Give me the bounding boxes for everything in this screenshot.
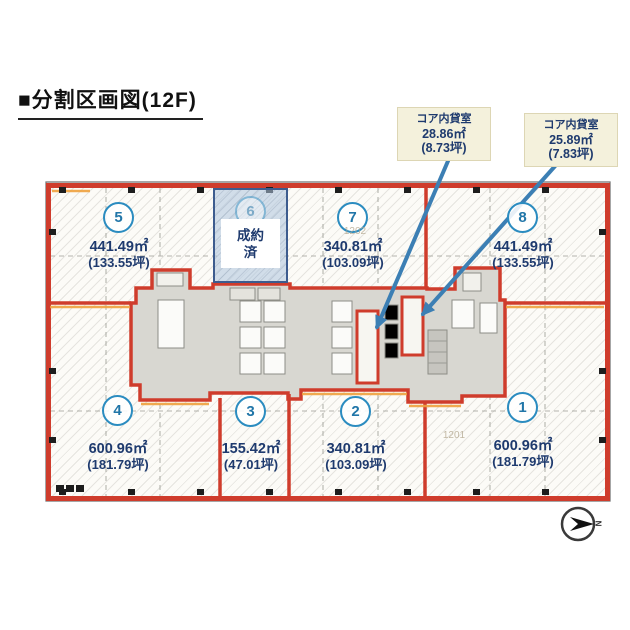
elevator-shaft xyxy=(332,353,352,374)
core-outline xyxy=(131,268,505,402)
elevator-shaft xyxy=(240,327,261,348)
section-7-area-tsubo: (103.09坪) xyxy=(273,255,433,270)
core-rental-room-1 xyxy=(357,311,378,383)
core-room xyxy=(480,303,497,333)
elevator-shaft xyxy=(264,301,285,322)
section-2-area-tsubo: (103.09坪) xyxy=(276,457,436,472)
elevator-shaft xyxy=(240,301,261,322)
section-6-number: 6 xyxy=(246,203,254,220)
elevator-shaft xyxy=(240,353,261,374)
section-2-number: 2 xyxy=(351,403,359,420)
north-compass xyxy=(562,508,594,540)
section-8-circle: 8 xyxy=(507,202,538,233)
section-3-circle: 3 xyxy=(235,396,266,427)
section-1-area: 600.96㎡ (181.79坪) xyxy=(443,439,603,469)
section-1-circle: 1 xyxy=(507,392,538,423)
dim-label-1201: 1201 xyxy=(432,430,476,441)
callout-core-room-1: コア内貸室 28.86㎡ (8.73坪) xyxy=(397,107,491,161)
callout-1-label: コア内貸室 xyxy=(417,112,472,127)
core-room xyxy=(452,300,474,328)
section-4-circle: 4 xyxy=(102,395,133,426)
callout-2-area-m2: 25.89㎡ xyxy=(549,133,593,148)
section-8-area-m2: 441.49㎡ xyxy=(443,240,603,255)
elevator-shaft xyxy=(332,327,352,348)
elevator-shaft xyxy=(264,353,285,374)
plan-drawing xyxy=(0,0,630,630)
callout-1-area-m2: 28.86㎡ xyxy=(422,127,466,142)
section-1-area-tsubo: (181.79坪) xyxy=(443,454,603,469)
callout-2-area-tsubo: (7.83坪) xyxy=(548,147,593,162)
section-1-area-m2: 600.96㎡ xyxy=(443,439,603,454)
section-4-number: 4 xyxy=(113,402,121,419)
section-5-number: 5 xyxy=(114,209,122,226)
section-8-area: 441.49㎡ (133.55坪) xyxy=(443,240,603,270)
callout-2-label: コア内貸室 xyxy=(544,118,599,133)
section-2-area: 340.81㎡ (103.09坪) xyxy=(276,442,436,472)
section-3-number: 3 xyxy=(246,403,254,420)
callout-core-room-2: コア内貸室 25.89㎡ (7.83坪) xyxy=(524,113,618,167)
core-room xyxy=(158,300,184,348)
section-2-circle: 2 xyxy=(340,396,371,427)
dim-label-1202: 1202 xyxy=(333,226,377,237)
section-1-number: 1 xyxy=(518,399,526,416)
section-7-area: 340.81㎡ (103.09坪) xyxy=(273,240,433,270)
elevator-shaft xyxy=(264,327,285,348)
callout-1-area-tsubo: (8.73坪) xyxy=(421,141,466,156)
north-label: N xyxy=(593,521,602,527)
section-2-area-m2: 340.81㎡ xyxy=(276,442,436,457)
section-5-area-tsubo: (133.55坪) xyxy=(39,255,199,270)
section-7-area-m2: 340.81㎡ xyxy=(273,240,433,255)
section-6-status: 成約済 xyxy=(235,227,267,261)
section-8-area-tsubo: (133.55坪) xyxy=(443,255,603,270)
section-6-status-box: 成約済 xyxy=(221,219,280,268)
section-5-area-m2: 441.49㎡ xyxy=(39,240,199,255)
section-8-number: 8 xyxy=(518,209,526,226)
section-7-number: 7 xyxy=(348,209,356,226)
core-rental-room-2 xyxy=(402,297,423,355)
elevator-shaft xyxy=(332,301,352,322)
section-5-circle: 5 xyxy=(103,202,134,233)
section-5-area: 441.49㎡ (133.55坪) xyxy=(39,240,199,270)
